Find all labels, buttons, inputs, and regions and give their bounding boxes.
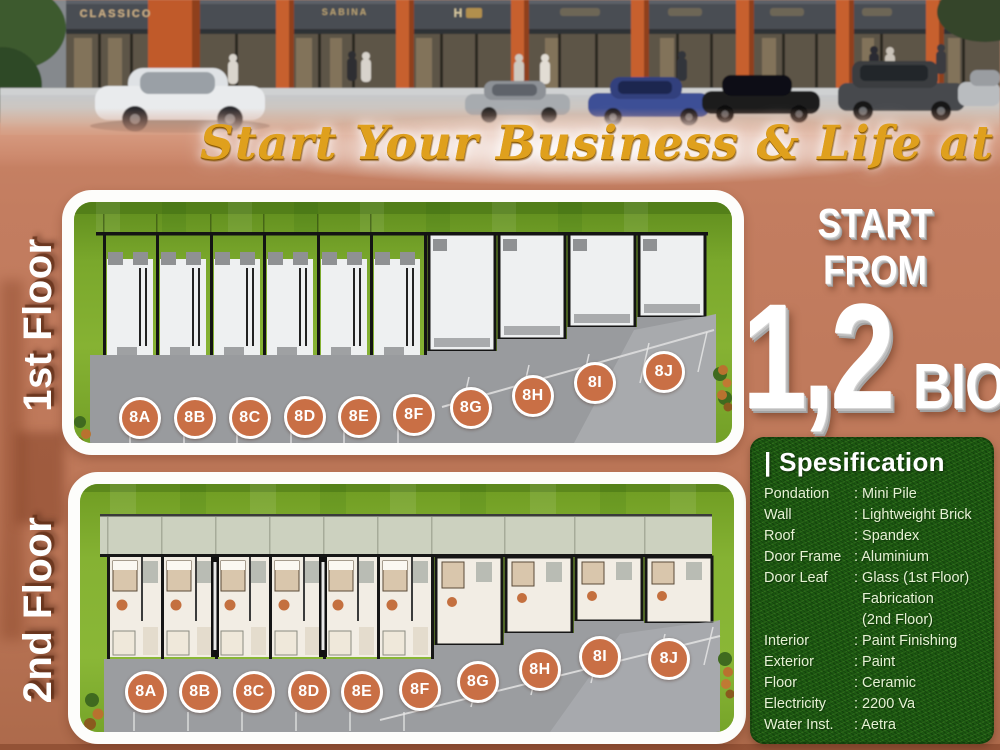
narrow-units <box>107 557 434 659</box>
unit-badge-8d: 8D <box>288 671 330 713</box>
spec-row: Interior: Paint Finishing <box>764 631 982 652</box>
spec-value: : Paint <box>854 652 982 673</box>
unit-badge-8f: 8F <box>399 669 441 711</box>
spec-row: Door Leaf: Glass (1st Floor) <box>764 568 982 589</box>
unit-badge-8h: 8H <box>519 649 561 691</box>
unit-badge-8i: 8I <box>574 362 616 404</box>
spec-value: : Aetra <box>854 715 982 736</box>
spec-row: Water Inst.: Aetra <box>764 715 982 736</box>
unit-badge-8e: 8E <box>341 671 383 713</box>
spec-label: Exterior <box>764 652 854 673</box>
unit-badge-8j: 8J <box>643 351 685 393</box>
spec-row: Door Frame: Aluminium <box>764 547 982 568</box>
shop-sign-sabina: SABINA <box>322 7 369 17</box>
tagline: Start Your Business & Life at Ease <box>200 116 1000 171</box>
spec-label: Wall <box>764 505 854 526</box>
spec-row-continuation: Fabrication <box>764 589 982 610</box>
spec-value: : Aluminium <box>854 547 982 568</box>
spec-row: Exterior: Paint <box>764 652 982 673</box>
spec-label: Interior <box>764 631 854 652</box>
spec-value: : Glass (1st Floor) <box>854 568 982 589</box>
unit-badge-8c: 8C <box>233 671 275 713</box>
spec-row: Pondation: Mini Pile <box>764 484 982 505</box>
spec-label: Door Leaf <box>764 568 854 589</box>
spec-value: : Ceramic <box>854 673 982 694</box>
unit-badge-8g: 8G <box>450 387 492 429</box>
unit-badge-8b: 8B <box>174 397 216 439</box>
first-floor-plan: 8A8B8C8D8E8F8G8H8I8J <box>62 190 744 455</box>
flyer-page: CLASSICO SABINA H <box>0 0 1000 750</box>
spec-label: Roof <box>764 526 854 547</box>
spec-label: Floor <box>764 673 854 694</box>
shop-sign-h: H <box>454 6 463 20</box>
spec-label: Door Frame <box>764 547 854 568</box>
specification-panel: | Spesification Pondation: Mini PileWall… <box>750 437 994 744</box>
unit-badge-8c: 8C <box>229 397 271 439</box>
spec-label: Pondation <box>764 484 854 505</box>
unit-badge-8j: 8J <box>648 638 690 680</box>
price-unit: BIO <box>913 358 1000 416</box>
specification-rows: Pondation: Mini PileWall: Lightweight Br… <box>764 484 982 736</box>
unit-badge-8f: 8F <box>393 394 435 436</box>
unit-badge-8a: 8A <box>125 671 167 713</box>
shop-sign-plate <box>466 8 482 18</box>
spec-label: Water Inst. <box>764 715 854 736</box>
second-floor-plan: 8A8B8C8D8E8F8G8H8I8J <box>68 472 746 744</box>
unit-badge-8b: 8B <box>179 671 221 713</box>
price-block: START FROM 1,2 BIO <box>756 200 994 422</box>
specification-title: | Spesification <box>764 447 982 478</box>
shop-sign-classico: CLASSICO <box>80 8 153 20</box>
spec-row: Electricity: 2200 Va <box>764 694 982 715</box>
unit-badge-8h: 8H <box>512 375 554 417</box>
second-floor-label: 2nd Floor <box>0 510 76 710</box>
spec-value: : 2200 Va <box>854 694 982 715</box>
spec-value: : Lightweight Brick <box>854 505 982 526</box>
spec-row: Wall: Lightweight Brick <box>764 505 982 526</box>
mow-stripes <box>96 202 648 234</box>
bottom-edge <box>0 744 1000 750</box>
spec-label: Electricity <box>764 694 854 715</box>
spec-row: Floor: Ceramic <box>764 673 982 694</box>
price-amount: 1,2 <box>742 290 891 422</box>
spec-value: : Paint Finishing <box>854 631 982 652</box>
unit-badge-8e: 8E <box>338 396 380 438</box>
spec-value: : Mini Pile <box>854 484 982 505</box>
upper-void-band <box>100 515 712 555</box>
unit-badge-8i: 8I <box>579 636 621 678</box>
spec-value: : Spandex <box>854 526 982 547</box>
spec-row-continuation: (2nd Floor) <box>764 610 982 631</box>
mow-stripes <box>110 484 696 515</box>
unit-badge-8g: 8G <box>457 661 499 703</box>
unit-badge-8d: 8D <box>284 396 326 438</box>
unit-badge-8a: 8A <box>119 397 161 439</box>
spec-row: Roof: Spandex <box>764 526 982 547</box>
